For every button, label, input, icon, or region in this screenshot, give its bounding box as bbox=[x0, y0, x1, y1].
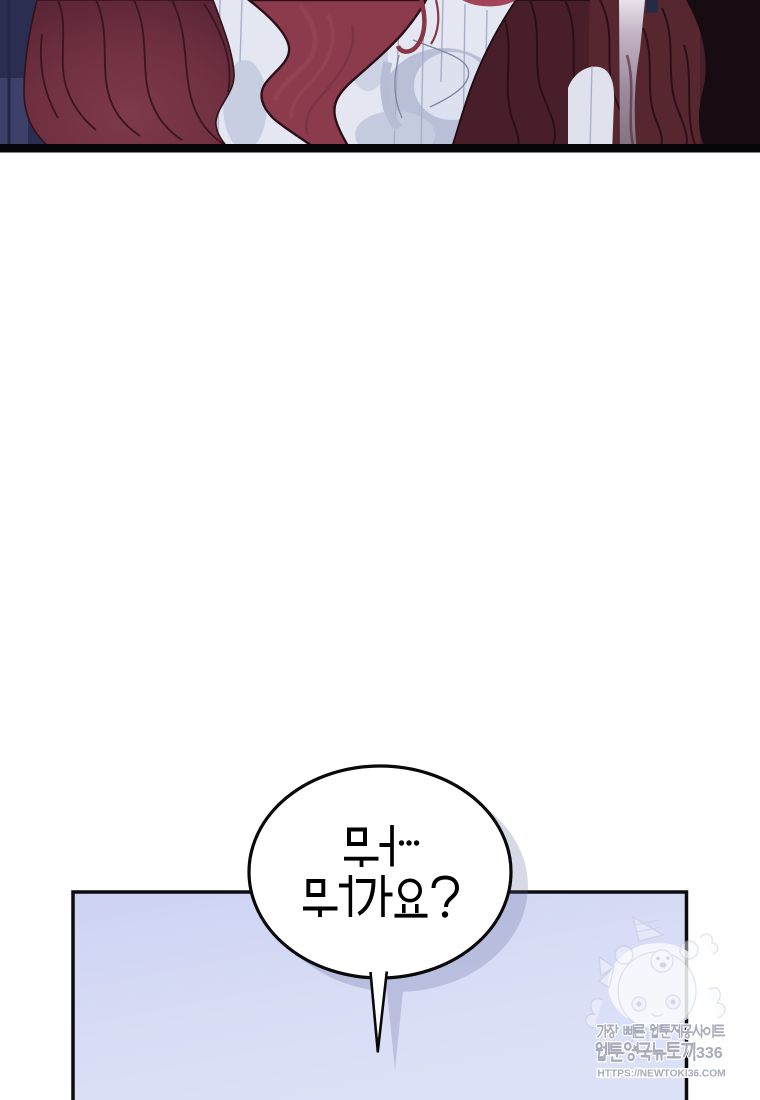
svg-text:HTTPS://NEWTOKI36.COM: HTTPS://NEWTOKI36.COM bbox=[597, 1069, 725, 1080]
svg-text:336: 336 bbox=[696, 1045, 723, 1062]
